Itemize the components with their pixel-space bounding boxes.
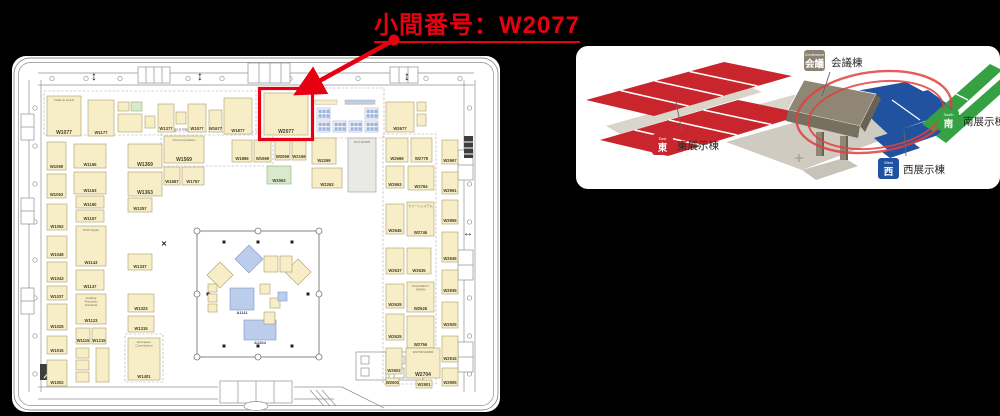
- booth-W1069: W1069: [47, 142, 66, 170]
- svg-text:Conference: Conference: [805, 53, 825, 57]
- booth: [76, 360, 89, 370]
- svg-text:W1002: W1002: [50, 380, 64, 385]
- booth-W1363: W1363: [128, 172, 162, 196]
- booth-W2626: POLATECHJAPANW2626: [407, 282, 434, 312]
- svg-text:W1137: W1137: [83, 284, 97, 289]
- svg-text:PTW Japan: PTW Japan: [83, 228, 99, 232]
- updown-arrow-icon: ↕: [404, 69, 410, 83]
- booth-W2764: W2764: [408, 166, 434, 190]
- booth-W2077: W2077: [264, 93, 308, 135]
- booth-W1123: GuidingPrecisionIndustrialW1123: [76, 294, 106, 324]
- svg-text:南: 南: [944, 118, 954, 130]
- booth-W1969: W1969: [254, 140, 271, 162]
- booth-W1163: W1163: [74, 172, 106, 194]
- svg-text:KLA Corporation: KLA Corporation: [173, 138, 196, 142]
- south-badge: South 南: [938, 110, 959, 131]
- svg-text:W2601: W2601: [386, 380, 400, 385]
- atrium-booth: [278, 292, 287, 301]
- booth-W2637: W2637: [386, 248, 404, 274]
- west-label: 西展示棟: [903, 163, 945, 176]
- svg-text:クリーンシステム: クリーンシステム: [408, 203, 433, 208]
- booth: [118, 114, 142, 132]
- booth-W1177: W1177: [88, 100, 114, 136]
- booth-W2169: W2169: [292, 140, 306, 160]
- east-badge: East 東: [652, 134, 673, 155]
- booth-W2601: W2601: [386, 378, 400, 386]
- booth-W2945: W2945: [442, 232, 458, 262]
- booth-W2915: W2915: [442, 336, 458, 362]
- svg-text:W2263: W2263: [320, 182, 334, 187]
- booth-W1677: W1677: [209, 110, 223, 132]
- floorplan-svg: ↕ ↕ ↕ ↔ ↔ ✕ Metrology & Inspection Trade…: [12, 56, 500, 412]
- booth-W2625: W2625: [386, 314, 404, 340]
- east-label: 東展示棟: [677, 139, 719, 152]
- atrium-booth: [264, 256, 278, 272]
- updown-arrow-icon: ↕: [197, 69, 203, 83]
- svg-text:W1123: W1123: [84, 318, 98, 323]
- booth-W2901: W2901: [416, 380, 432, 388]
- booth-W2635: W2635: [407, 248, 431, 274]
- booth-W1869: W1869: [232, 140, 252, 162]
- svg-text:W1063: W1063: [50, 192, 64, 197]
- booth-W2905: W2905: [442, 368, 458, 386]
- svg-text:EuropeanCommission: EuropeanCommission: [135, 340, 152, 347]
- booth-W2645: W2645: [386, 204, 404, 234]
- svg-text:W1077: W1077: [56, 130, 72, 136]
- svg-text:W2669: W2669: [390, 156, 404, 161]
- booth-W1323: W1323: [128, 294, 154, 312]
- svg-text:W1569: W1569: [176, 157, 192, 163]
- booth-W1877: W1877: [224, 98, 252, 134]
- svg-text:W2756: W2756: [414, 342, 428, 347]
- svg-text:W2625: W2625: [388, 334, 402, 339]
- svg-text:W2967: W2967: [443, 158, 457, 163]
- booth: [76, 372, 89, 382]
- svg-text:W1069: W1069: [50, 164, 64, 169]
- venue-map-svg: Conference 会議 East 東 West 西 South 南: [576, 46, 1000, 189]
- booth-W1137: W1137: [76, 270, 104, 290]
- svg-text:South: South: [944, 113, 954, 117]
- south-label: 南展示棟: [963, 115, 1000, 128]
- svg-text:会議: 会議: [805, 58, 825, 70]
- booth: [145, 116, 155, 128]
- svg-text:A1111: A1111: [236, 310, 248, 315]
- svg-text:W1037: W1037: [50, 294, 64, 299]
- booth-W1052: W1052: [47, 204, 67, 230]
- booth-W2779: W2779: [411, 138, 432, 162]
- svg-text:W2637: W2637: [388, 268, 402, 273]
- svg-text:W1323: W1323: [134, 306, 148, 311]
- svg-text:Trade & Invest: Trade & Invest: [54, 98, 74, 102]
- booth-number-title: 小間番号：W2077: [374, 5, 580, 43]
- svg-text:W2915: W2915: [443, 356, 457, 361]
- svg-text:W1043: W1043: [50, 276, 64, 281]
- booth-W2269: W2269: [312, 138, 336, 164]
- booth-W1143: PTW JapanW1143: [76, 226, 106, 266]
- atrium-booth: [264, 312, 275, 324]
- booth-W1165: W1165: [74, 144, 106, 168]
- svg-text:W1015: W1015: [50, 348, 64, 353]
- svg-text:W2602: W2602: [387, 368, 401, 373]
- svg-text:W1163: W1163: [83, 188, 97, 193]
- booth-W1369: W1369: [128, 144, 162, 168]
- atrium-booth: [208, 304, 217, 312]
- booth-W2961: W2961: [442, 172, 458, 194]
- booth-W1257: W1257: [128, 198, 152, 212]
- svg-text:西: 西: [884, 167, 894, 178]
- booth-W2069: W2069: [275, 140, 290, 160]
- booth-W1401: EuropeanCommissionW1401: [128, 338, 160, 380]
- booth-W2925: W2925: [442, 302, 458, 328]
- svg-text:W2708 W2806: W2708 W2806: [413, 350, 434, 354]
- svg-text:W2905: W2905: [443, 380, 457, 385]
- atrium-booth: [260, 284, 270, 294]
- leftright-arrow-icon: ↔: [463, 228, 473, 239]
- svg-text:W1877: W1877: [231, 128, 245, 133]
- svg-text:W2663: W2663: [388, 182, 402, 187]
- booth: [96, 348, 109, 382]
- atrium-booth: [208, 284, 217, 292]
- svg-text:W1177: W1177: [94, 130, 108, 135]
- booth-W1037: W1037: [47, 286, 67, 300]
- booth-W1767: W1767: [182, 167, 204, 185]
- svg-text:W1025: W1025: [50, 324, 64, 329]
- booth: [417, 114, 426, 126]
- booth-W1377: W1377: [158, 104, 174, 132]
- svg-text:W1337: W1337: [133, 264, 147, 269]
- atrium-booth: [208, 294, 217, 302]
- booth-W2746: クリーンシステムW2746: [407, 202, 434, 236]
- svg-text:W2626: W2626: [414, 306, 428, 311]
- booth-W2704: W2708 W2806W2704: [406, 348, 440, 378]
- svg-text:W2925: W2925: [443, 322, 457, 327]
- floorplan-panel: ↕ ↕ ↕ ↔ ↔ ✕ Metrology & Inspection Trade…: [12, 56, 500, 412]
- svg-text:W1215: W1215: [92, 338, 106, 343]
- svg-text:W1315: W1315: [134, 326, 148, 331]
- booth-W1077: Trade & InvestW1077: [47, 96, 81, 136]
- svg-text:W2779: W2779: [415, 156, 429, 161]
- booth-W1025: W1025: [47, 304, 67, 330]
- svg-text:GuidingPrecisionIndustrial: GuidingPrecisionIndustrial: [85, 296, 98, 307]
- svg-text:W1157: W1157: [83, 216, 97, 221]
- svg-text:A1204: A1204: [254, 340, 267, 345]
- booth-W2602: W2602: [386, 348, 402, 374]
- booth-W2263: W2263: [312, 168, 342, 188]
- svg-text:W1363: W1363: [137, 190, 153, 196]
- svg-text:W2704: W2704: [415, 372, 431, 378]
- booth-W1567: W1567: [164, 167, 180, 185]
- svg-text:W2677: W2677: [393, 126, 407, 131]
- booth-W1337: W1337: [128, 254, 152, 270]
- slide: 小間番号：W2077: [0, 0, 1000, 416]
- svg-text:W1115: W1115: [77, 338, 90, 343]
- booth-W1157: W1157: [76, 210, 104, 222]
- booth-W1160: W1160: [76, 196, 104, 208]
- booth: [118, 102, 129, 111]
- venue-map-panel: Conference 会議 East 東 West 西 South 南: [576, 46, 1000, 189]
- updown-arrow-icon: ↕: [91, 69, 97, 83]
- booth: [417, 102, 426, 111]
- booth-W2669: W2669: [386, 138, 408, 162]
- booth-W1115: W1115: [76, 328, 90, 344]
- svg-text:W2269: W2269: [317, 158, 331, 163]
- svg-text:W2077: W2077: [278, 129, 294, 135]
- svg-text:東: 東: [657, 142, 668, 154]
- booth-W2677: W2677: [386, 102, 414, 132]
- closed-x-icon: ✕: [161, 241, 167, 248]
- booth-W1315: W1315: [128, 316, 154, 332]
- booth-W1043: W1043: [47, 262, 67, 282]
- svg-text:West: West: [884, 161, 894, 165]
- svg-text:W2069: W2069: [276, 154, 290, 159]
- startup-booth-cluster: [315, 100, 378, 132]
- booth-W2063: W2063: [267, 166, 291, 184]
- svg-text:W1869: W1869: [235, 156, 249, 161]
- svg-text:W1577: W1577: [190, 126, 204, 131]
- svg-text:Tech SHOP: Tech SHOP: [354, 140, 370, 144]
- booth-W1215: W1215: [92, 328, 106, 344]
- svg-text:W1767: W1767: [186, 179, 200, 184]
- svg-text:W2746: W2746: [414, 230, 428, 235]
- booth-W1015: W1015: [47, 336, 67, 354]
- conference-badge: Conference 会議: [804, 50, 825, 71]
- booth-W2663: W2663: [386, 166, 404, 188]
- svg-text:W2764: W2764: [414, 184, 428, 189]
- svg-text:W1401: W1401: [137, 374, 151, 379]
- svg-text:W1052: W1052: [50, 224, 64, 229]
- booth-W1002: W1002: [47, 360, 67, 386]
- booth-W1569: KLA CorporationW1569: [164, 136, 204, 163]
- svg-text:East: East: [659, 137, 668, 141]
- svg-text:W2945: W2945: [443, 256, 457, 261]
- svg-text:W1165: W1165: [83, 162, 97, 167]
- svg-text:W2063: W2063: [272, 178, 286, 183]
- svg-text:W2629: W2629: [388, 302, 402, 307]
- booth-W2935: W2935: [442, 270, 458, 294]
- svg-text:W2961: W2961: [443, 188, 457, 193]
- conference-label: 会議棟: [831, 56, 863, 69]
- svg-text:W1143: W1143: [84, 260, 98, 265]
- booth-W1063: W1063: [47, 174, 66, 198]
- svg-text:W2901: W2901: [417, 382, 431, 387]
- svg-text:W1969: W1969: [256, 156, 270, 161]
- svg-text:W2955: W2955: [443, 218, 457, 223]
- svg-text:W1048: W1048: [50, 252, 64, 257]
- svg-text:W2645: W2645: [388, 228, 402, 233]
- svg-text:W1567: W1567: [165, 179, 179, 184]
- booth-W1577: W1577: [188, 104, 206, 132]
- svg-text:W2635: W2635: [412, 268, 426, 273]
- svg-text:W1160: W1160: [83, 202, 97, 207]
- svg-text:W1677: W1677: [209, 126, 223, 131]
- west-badge: West 西: [878, 158, 899, 179]
- booth-W2629: W2629: [386, 284, 404, 308]
- svg-text:W1377: W1377: [159, 126, 173, 131]
- svg-text:W1369: W1369: [137, 162, 153, 168]
- atrium-courtyard: A1111A1204: [194, 228, 322, 360]
- booth-W1048: W1048: [47, 236, 67, 258]
- booth: [131, 102, 142, 111]
- booth: [76, 348, 89, 358]
- booth: Tech SHOP: [348, 138, 376, 192]
- svg-text:W2935: W2935: [443, 288, 457, 293]
- booth-W2967: W2967: [442, 140, 458, 164]
- booth-W2955: W2955: [442, 200, 458, 224]
- booth: [176, 112, 186, 124]
- svg-text:W2169: W2169: [292, 154, 306, 159]
- atrium-booth: [280, 256, 292, 272]
- svg-text:W1257: W1257: [133, 206, 147, 211]
- booth-W2756: W2756: [407, 316, 434, 348]
